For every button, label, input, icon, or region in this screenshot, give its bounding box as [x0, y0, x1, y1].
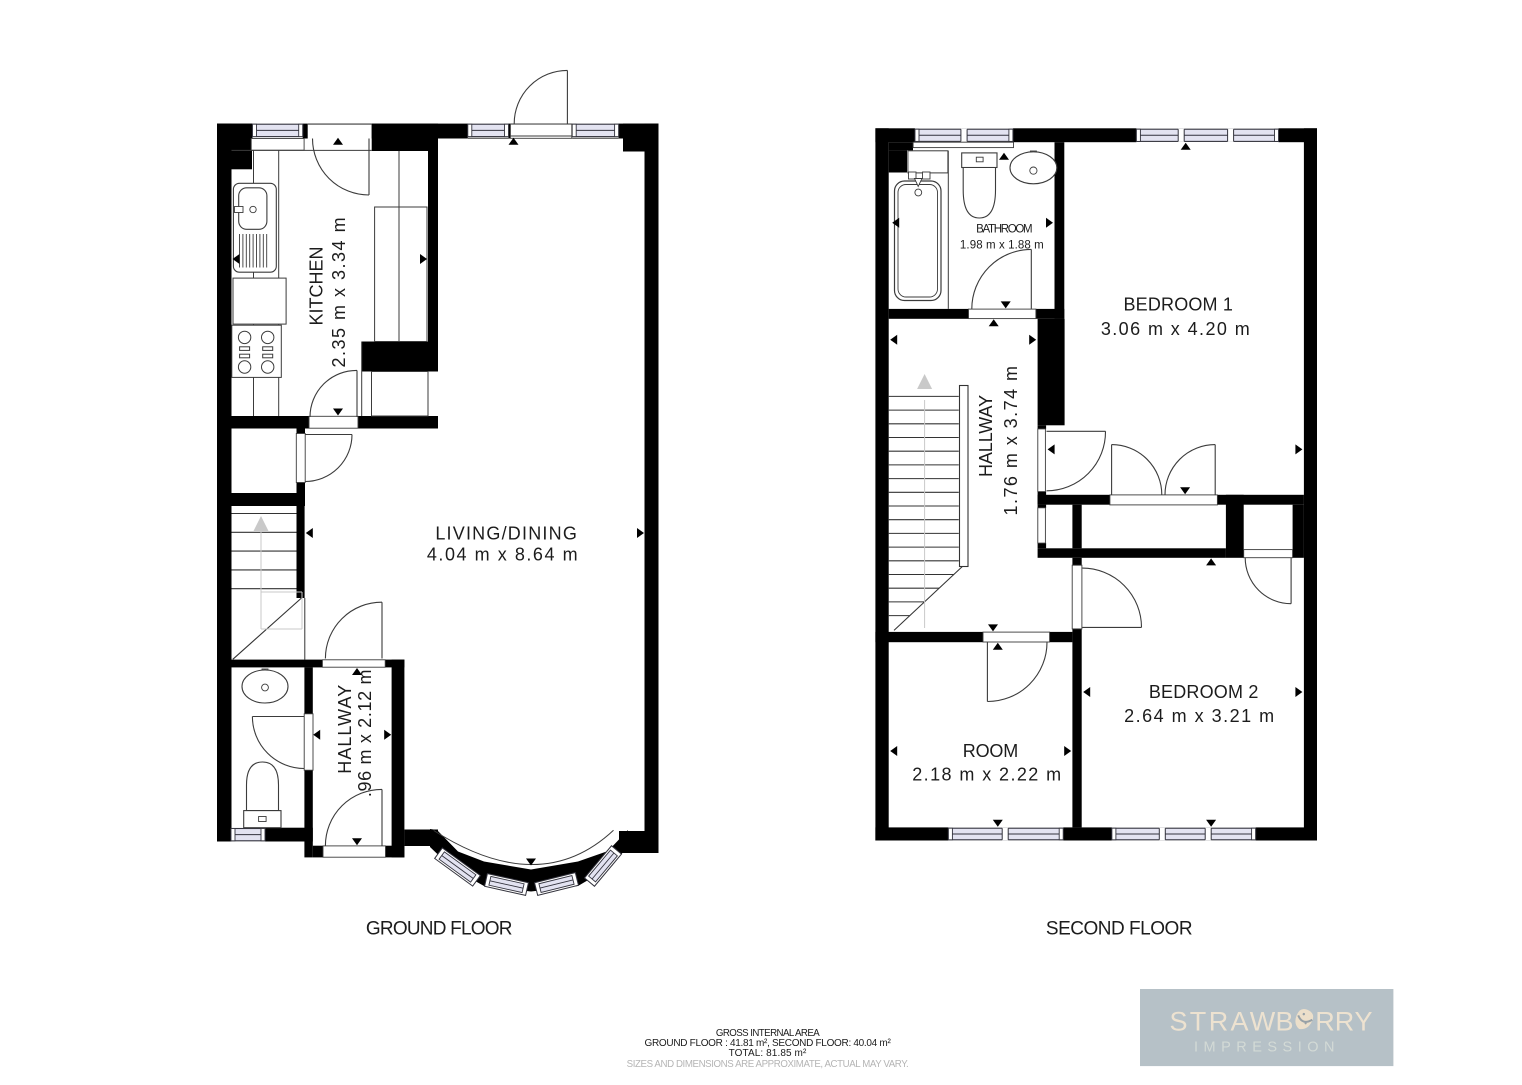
svg-text:1.76 m x 3.74 m: 1.76 m x 3.74 m — [1001, 365, 1021, 516]
svg-text:KITCHEN: KITCHEN — [307, 246, 327, 325]
svg-text:IMPRESSION: IMPRESSION — [1194, 1040, 1340, 1056]
svg-text:2.35 m x 3.34 m: 2.35 m x 3.34 m — [329, 216, 349, 368]
svg-text:HALLWAY: HALLWAY — [335, 684, 355, 774]
svg-text:.96 m x 2.12 m: .96 m x 2.12 m — [355, 669, 375, 797]
svg-text:LIVING/DINING: LIVING/DINING — [435, 524, 578, 544]
svg-text:TOTAL: 81.85 m²: TOTAL: 81.85 m² — [729, 1048, 807, 1059]
svg-text:2.64 m x 3.21 m: 2.64 m x 3.21 m — [1124, 706, 1276, 726]
svg-text:Y: Y — [1354, 1007, 1372, 1037]
svg-text:BEDROOM 1: BEDROOM 1 — [1123, 295, 1233, 315]
svg-text:HALLWAY: HALLWAY — [976, 395, 996, 477]
svg-text:SECOND FLOOR: SECOND FLOOR — [1046, 919, 1192, 940]
svg-text:W: W — [1250, 1007, 1276, 1037]
svg-text:GROUND FLOOR: GROUND FLOOR — [366, 919, 512, 940]
svg-text:BATHROOM: BATHROOM — [976, 224, 1032, 236]
svg-text:1.98 m x 1.88 m: 1.98 m x 1.88 m — [960, 239, 1044, 251]
svg-text:A: A — [1230, 1007, 1248, 1037]
svg-text:B: B — [1275, 1007, 1293, 1037]
svg-text:4.04 m x 8.64 m: 4.04 m x 8.64 m — [427, 545, 579, 565]
svg-text:2.18 m x 2.22 m: 2.18 m x 2.22 m — [912, 765, 1062, 785]
svg-text:R: R — [1315, 1007, 1335, 1037]
svg-text:T: T — [1190, 1007, 1207, 1037]
svg-text:S: S — [1169, 1007, 1187, 1037]
svg-text:ROOM: ROOM — [963, 741, 1018, 761]
svg-text:SIZES AND DIMENSIONS ARE APPRO: SIZES AND DIMENSIONS ARE APPROXIMATE, AC… — [627, 1059, 909, 1070]
svg-text:BEDROOM 2: BEDROOM 2 — [1149, 682, 1259, 702]
svg-text:3.06 m x 4.20 m: 3.06 m x 4.20 m — [1101, 319, 1251, 339]
svg-text:R: R — [1335, 1007, 1355, 1037]
svg-text:R: R — [1209, 1007, 1229, 1037]
